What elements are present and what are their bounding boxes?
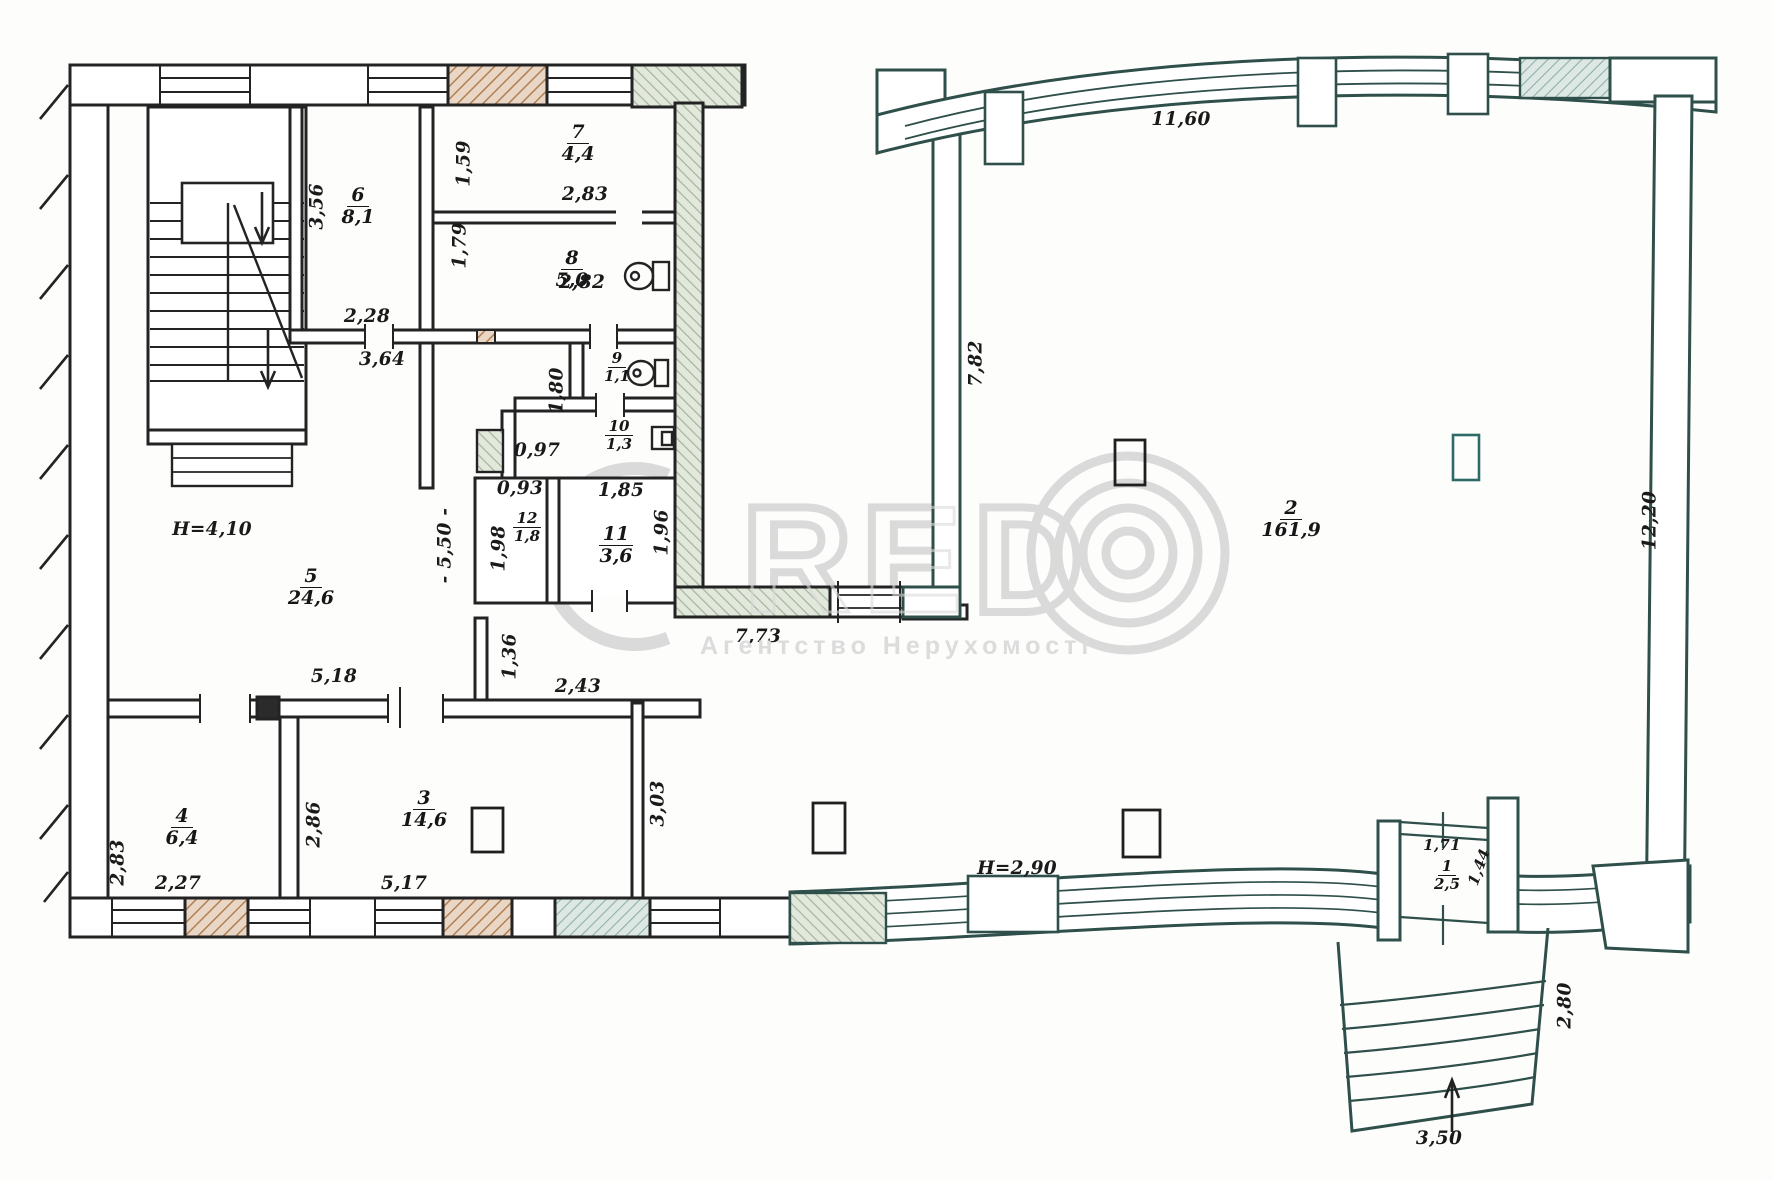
wall-hatch-ticks [40, 85, 68, 902]
room-number: 3 [413, 788, 434, 810]
wall-room3-room4 [280, 717, 298, 898]
dim-porch-depth: 2,80 [1555, 974, 1576, 1038]
dim-room7-left: 1,59 [454, 132, 475, 196]
dim-room11-right: 1,96 [652, 501, 673, 565]
room-area: 4,4 [543, 144, 613, 165]
vestibule-pier-right [1488, 798, 1518, 932]
wall-bottom-facade [70, 898, 790, 937]
dim-hall-top: 11,60 [1131, 109, 1231, 130]
dim-height-hall: Н=2,90 [967, 858, 1067, 879]
door-gap-room8 [590, 328, 617, 345]
pier-brown-bottom-2 [443, 898, 512, 937]
vestibule-pier-left [1378, 821, 1400, 940]
stairwell-window [172, 444, 292, 486]
dim-step-097: 0,97 [505, 440, 569, 461]
dim-room8-width: 2,82 [550, 272, 614, 293]
dim-room8-left: 1,79 [450, 214, 471, 278]
floor-plan: RED [0, 0, 1772, 1181]
dim-height-left-wing: Н=4,10 [162, 519, 262, 540]
door-gap-room11 [592, 596, 627, 607]
room-area: 14,6 [389, 810, 459, 831]
room-number: 5 [300, 566, 321, 588]
room-label-3: 3 14,6 [389, 788, 459, 832]
room-label-10: 10 1,3 [592, 418, 646, 453]
pier-teal-top [1520, 58, 1612, 98]
dim-room6-width: 2,28 [335, 306, 399, 327]
room-area: 1,3 [592, 436, 646, 453]
dim-room4-left: 2,83 [108, 831, 129, 895]
room-label-6: 6 8,1 [323, 185, 393, 229]
dim-porch-width: 3,50 [1407, 1128, 1471, 1149]
entrance-arrow [1445, 1080, 1459, 1132]
room-label-5: 5 24,6 [276, 566, 346, 610]
dim-room5-width: 5,18 [302, 666, 366, 687]
wall-room3-right [632, 703, 643, 898]
pier-hall-top-3 [1448, 54, 1488, 114]
room-area: 1,1 [590, 368, 644, 385]
entrance-steps [1338, 928, 1548, 1132]
pier-step-097 [477, 430, 503, 472]
wall-passage-stub [475, 618, 487, 703]
door-gap-room10 [596, 396, 624, 413]
watermark-subtitle: Агентство Нерухомості [700, 632, 1060, 661]
plan-drawing: RED [0, 0, 1772, 1181]
pier-brown-bottom-1 [185, 898, 248, 937]
dim-room3-right: 3,03 [648, 772, 669, 836]
room-number: 10 [605, 418, 634, 436]
room-number: 12 [513, 510, 542, 528]
dim-room12-left: 1,98 [489, 517, 510, 581]
stairwell [148, 107, 306, 486]
dim-room7-width: 2,83 [553, 184, 617, 205]
dim-passage-136: 1,36 [500, 625, 521, 689]
door-gap-room3 [388, 698, 443, 719]
toilet-icon-room8 [625, 262, 669, 290]
wall-link-left [643, 700, 700, 717]
room-area: 8,1 [323, 207, 393, 228]
pier-hall-top-1 [985, 92, 1023, 164]
wall-hall-corner-se [1593, 860, 1688, 952]
room-number: 9 [608, 350, 626, 368]
room-label-4: 4 6,4 [147, 806, 217, 850]
wall-room6-left [290, 107, 302, 343]
dim-room11-width: 1,85 [589, 480, 653, 501]
door-gap-room4 [200, 698, 250, 719]
room-number: 1 [1438, 858, 1456, 876]
pier-hall-bottom-hatched [790, 893, 886, 943]
column-link [813, 803, 845, 853]
dim-hall-right: 12,20 [1640, 489, 1661, 553]
room-number: 7 [567, 122, 588, 144]
dim-hall-550: - 5,50 - [435, 496, 456, 596]
dim-room12-width: 0,93 [488, 478, 552, 499]
column-hall-center [1115, 440, 1145, 485]
pier-hall-top-2 [1298, 58, 1336, 126]
dim-room3-width: 5,17 [372, 873, 436, 894]
room-area: 24,6 [276, 588, 346, 609]
room-number: 4 [171, 806, 192, 828]
room-area: 6,4 [147, 828, 217, 849]
column-hall-east [1453, 435, 1479, 480]
sink-icon-room10 [652, 427, 674, 449]
column-room3 [472, 808, 503, 852]
dim-hall-left: 7,82 [966, 332, 987, 396]
room-area: 3,6 [581, 546, 651, 567]
room-number: 2 [1280, 498, 1301, 520]
room-area: 161,9 [1256, 520, 1326, 541]
room-label-9: 9 1,1 [590, 350, 644, 385]
pier-green-top [632, 65, 742, 107]
room-label-11: 11 3,6 [581, 524, 651, 568]
dim-room3-top: 2,43 [546, 676, 610, 697]
room-label-7: 7 4,4 [543, 122, 613, 166]
room-label-2: 2 161,9 [1256, 498, 1326, 542]
pier-brown-mid [477, 330, 495, 343]
dim-hall-364: 3,64 [350, 349, 414, 370]
stairwell-bottom-wall [148, 430, 306, 444]
wall-left-exterior [70, 65, 108, 937]
dim-room6-left: 3,56 [307, 175, 328, 239]
room-number: 11 [599, 524, 633, 546]
pier-brown-top [448, 65, 547, 105]
pier-hall-bottom-white [968, 876, 1058, 932]
wall-right-left-wing [675, 103, 703, 617]
dim-vestibule-width: 1,71 [1415, 836, 1469, 854]
column-hall-south [1123, 810, 1160, 857]
room-number: 6 [347, 185, 368, 207]
wall-room5-bottom [108, 700, 643, 717]
pier-dark [257, 697, 279, 719]
dim-room4-width: 2,27 [146, 873, 210, 894]
dim-room4-right: 2,86 [304, 793, 325, 857]
watermark-letters-inner: RED [742, 475, 1093, 645]
room-number: 8 [561, 248, 582, 270]
door-gap-room6 [365, 328, 393, 345]
door-gap-room7 [616, 210, 642, 225]
wall-room6-right [420, 107, 433, 488]
pier-teal-bottom [555, 898, 650, 937]
dim-corridor-180: 1,80 [547, 359, 568, 423]
